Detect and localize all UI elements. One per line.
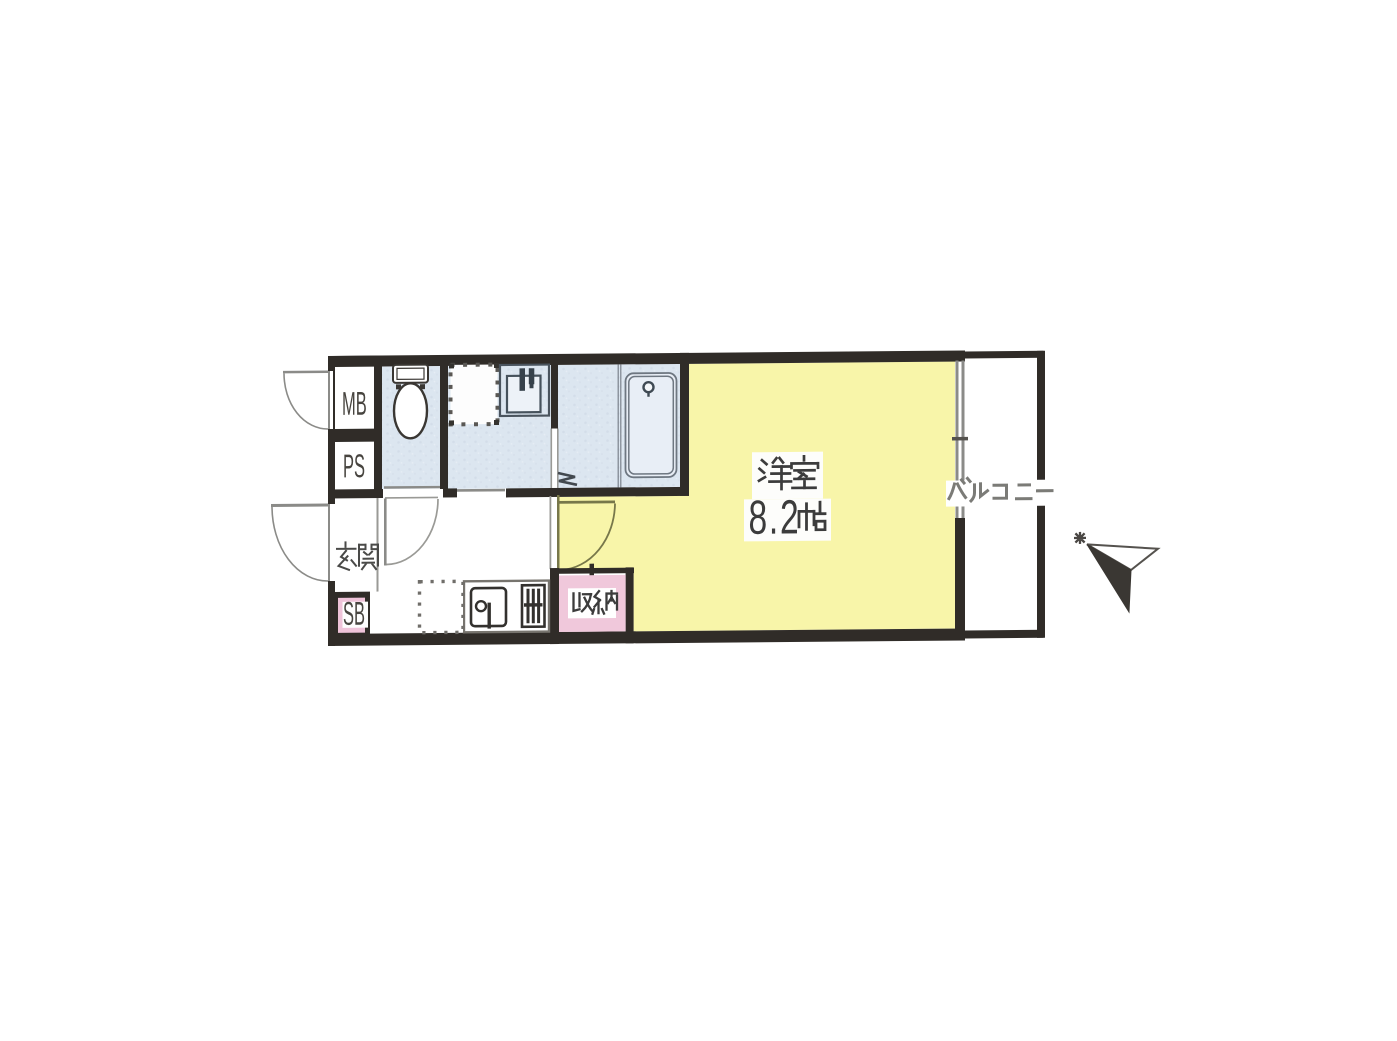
svg-text:MB: MB <box>342 384 367 422</box>
svg-text:8.2: 8.2 <box>749 489 801 544</box>
svg-text:PS: PS <box>343 447 365 485</box>
svg-text:SB: SB <box>343 594 365 632</box>
